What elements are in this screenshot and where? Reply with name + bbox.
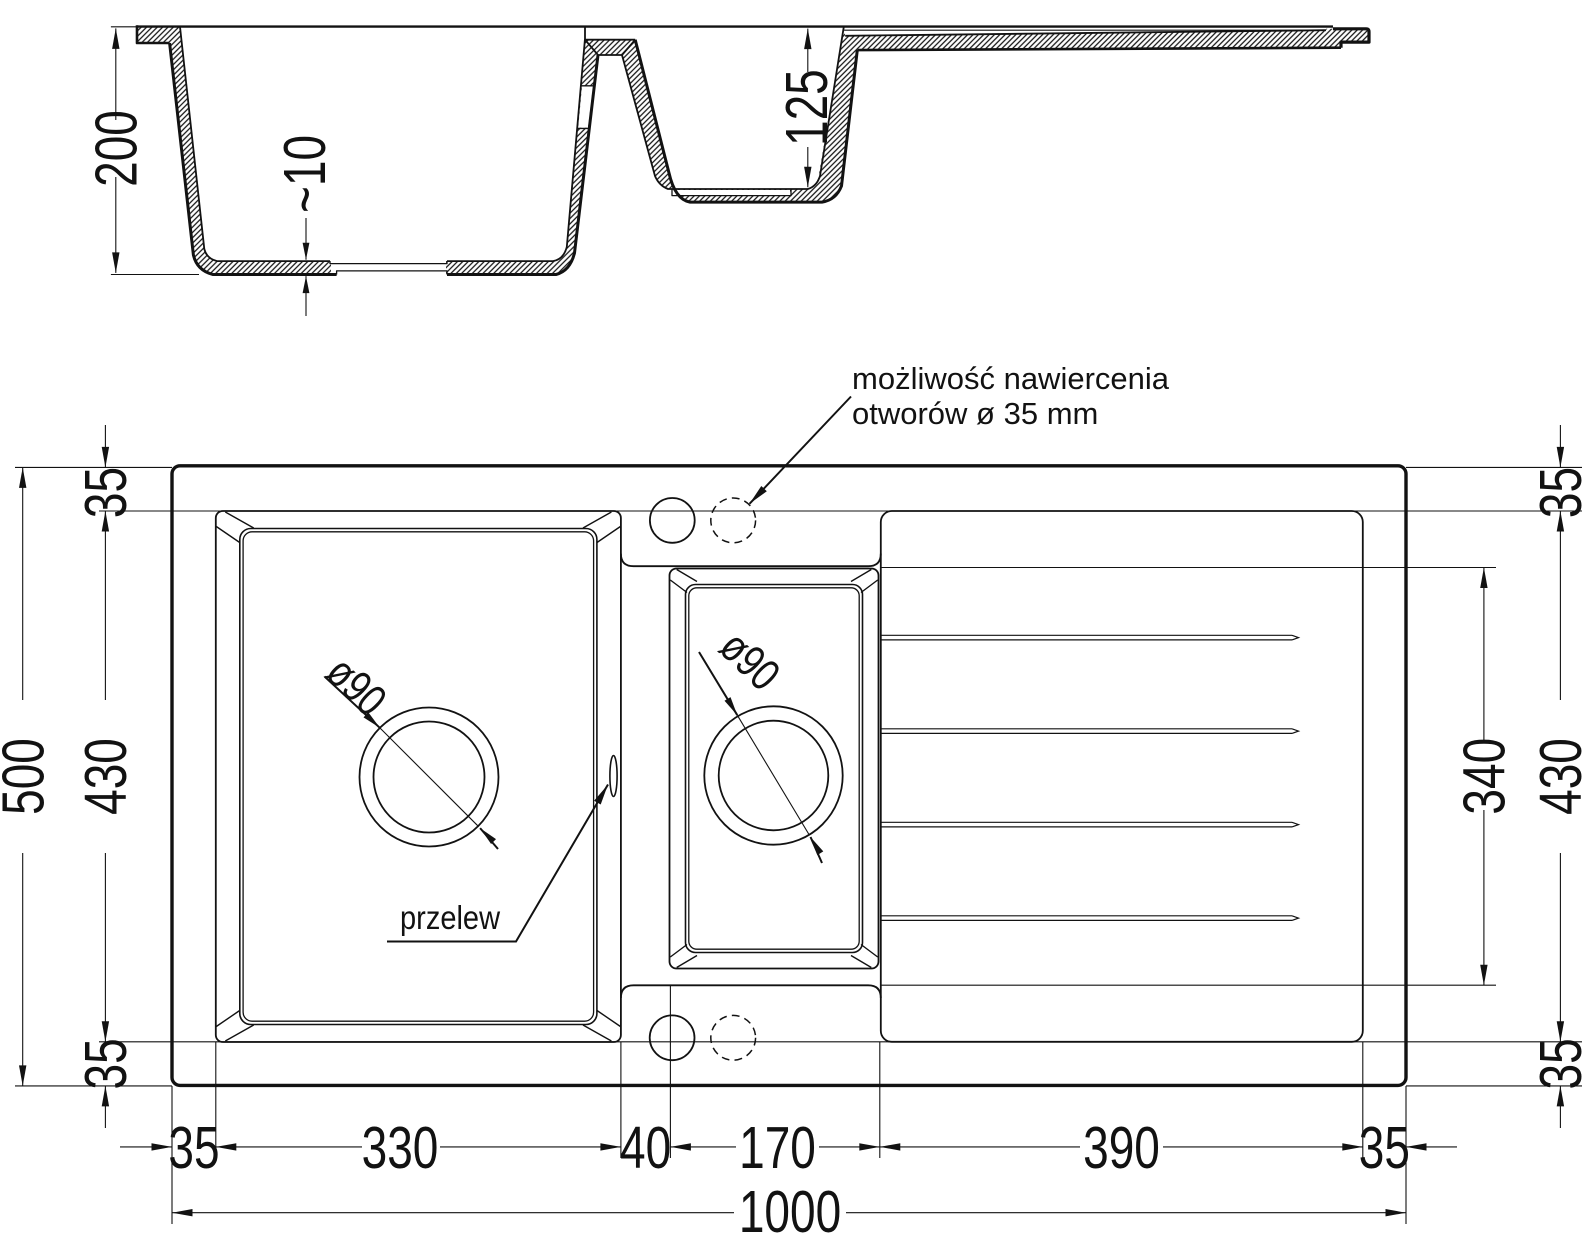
svg-text:35: 35 xyxy=(74,1038,140,1089)
svg-text:390: 390 xyxy=(1083,1115,1160,1181)
svg-text:430: 430 xyxy=(74,738,140,815)
svg-text:170: 170 xyxy=(739,1115,816,1181)
svg-text:430: 430 xyxy=(1529,738,1595,815)
svg-text:35: 35 xyxy=(74,467,140,518)
svg-text:~10: ~10 xyxy=(273,135,339,213)
svg-text:125: 125 xyxy=(775,69,841,146)
svg-text:40: 40 xyxy=(620,1115,671,1181)
svg-text:200: 200 xyxy=(84,110,150,187)
svg-text:przelew: przelew xyxy=(400,899,501,936)
svg-text:500: 500 xyxy=(0,738,57,815)
svg-text:330: 330 xyxy=(362,1115,439,1181)
svg-text:35: 35 xyxy=(1359,1115,1410,1181)
svg-text:35: 35 xyxy=(1529,1038,1595,1089)
svg-text:35: 35 xyxy=(1529,467,1595,518)
svg-text:możliwość nawiercenia: możliwość nawiercenia xyxy=(852,361,1170,396)
svg-text:otworów ø 35 mm: otworów ø 35 mm xyxy=(852,396,1098,431)
svg-text:340: 340 xyxy=(1452,738,1518,815)
svg-text:1000: 1000 xyxy=(739,1180,841,1236)
svg-text:35: 35 xyxy=(168,1115,219,1181)
